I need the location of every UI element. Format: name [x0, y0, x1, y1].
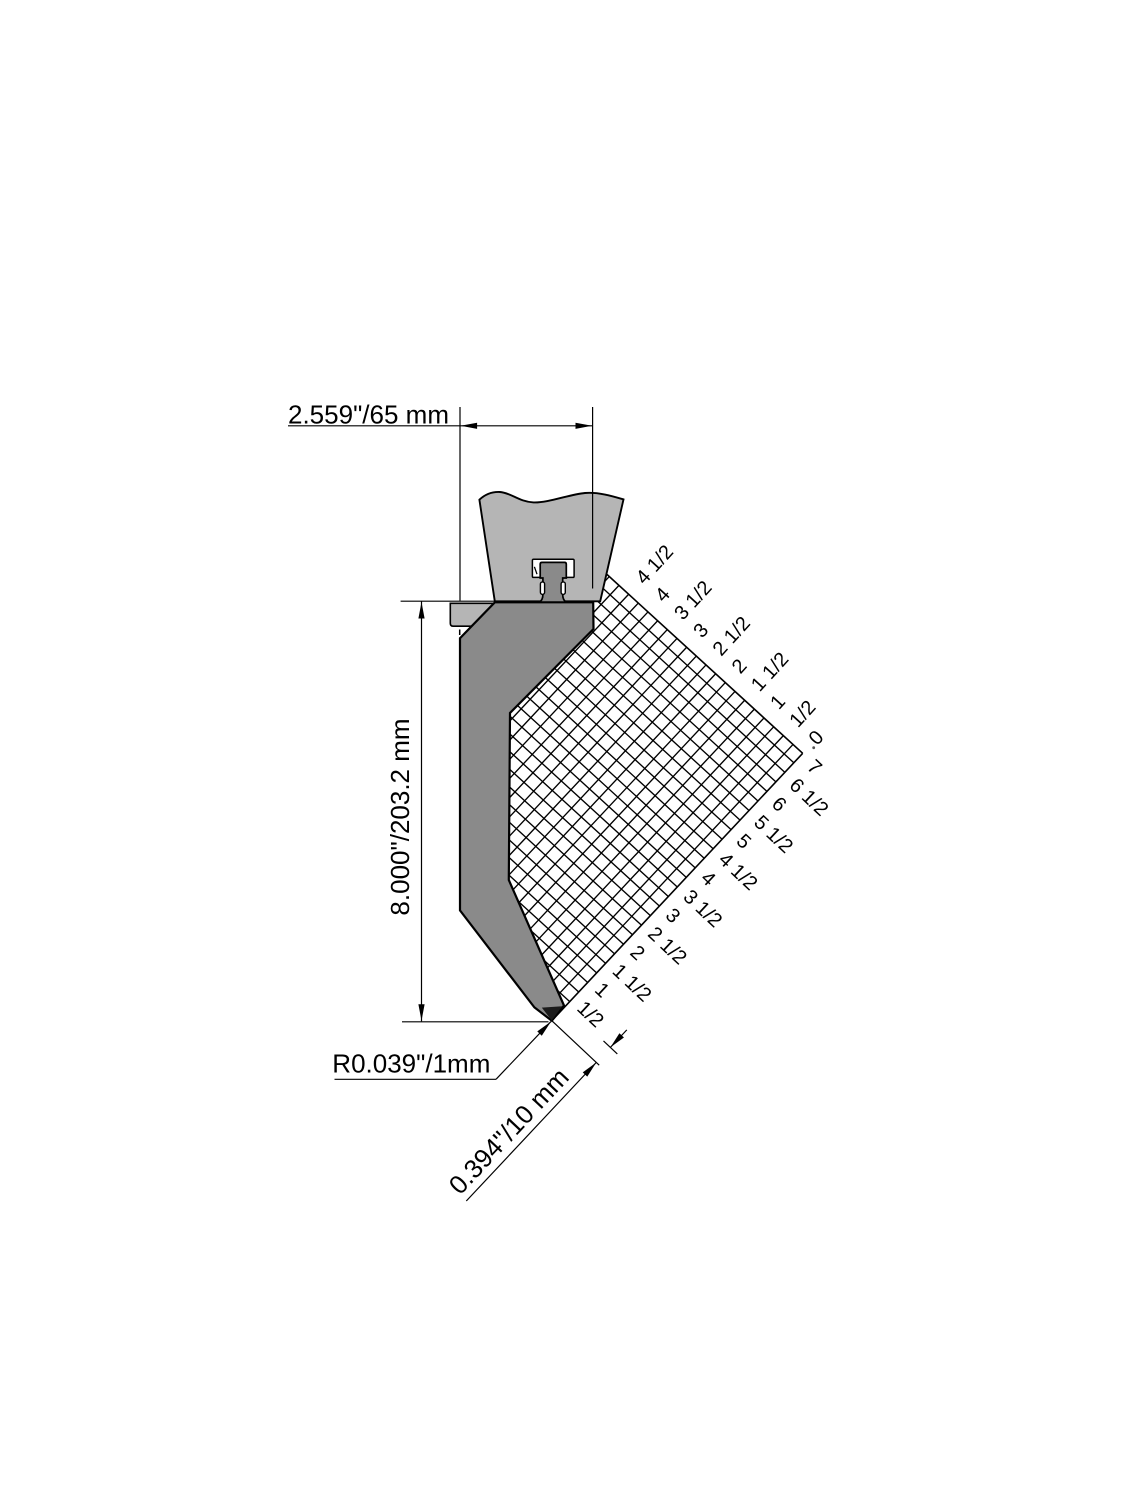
- svg-text:1 1/2: 1 1/2: [608, 960, 655, 1006]
- svg-text:3 1/2: 3 1/2: [670, 577, 716, 625]
- svg-text:R0.039"/1mm: R0.039"/1mm: [332, 1049, 490, 1079]
- svg-text:1/2: 1/2: [785, 696, 820, 731]
- svg-text:1/2: 1/2: [572, 997, 607, 1032]
- svg-text:2 1/2: 2 1/2: [709, 613, 755, 661]
- svg-text:2.559"/65 mm: 2.559"/65 mm: [288, 400, 449, 430]
- svg-text:0.394"/10 mm: 0.394"/10 mm: [443, 1062, 575, 1200]
- svg-text:1: 1: [766, 691, 790, 714]
- svg-text:1: 1: [590, 979, 613, 1003]
- svg-text:4 1/2: 4 1/2: [714, 849, 761, 895]
- svg-text:7: 7: [803, 756, 826, 780]
- svg-text:6: 6: [767, 793, 790, 817]
- svg-text:2 1/2: 2 1/2: [643, 923, 690, 969]
- svg-text:5 1/2: 5 1/2: [749, 811, 796, 857]
- svg-text:4: 4: [651, 584, 675, 607]
- svg-text:4 1/2: 4 1/2: [632, 541, 678, 589]
- svg-text:3 1/2: 3 1/2: [679, 886, 726, 932]
- svg-text:6 1/2: 6 1/2: [785, 774, 832, 820]
- svg-text:2: 2: [728, 655, 752, 678]
- svg-text:8.000"/203.2 mm: 8.000"/203.2 mm: [385, 718, 415, 915]
- svg-text:0: 0: [805, 727, 829, 750]
- svg-text:2: 2: [626, 941, 649, 965]
- svg-text:3: 3: [689, 619, 713, 642]
- svg-text:3: 3: [661, 904, 684, 928]
- svg-text:4: 4: [696, 867, 719, 891]
- svg-text:1 1/2: 1 1/2: [747, 648, 793, 696]
- svg-text:5: 5: [732, 830, 755, 854]
